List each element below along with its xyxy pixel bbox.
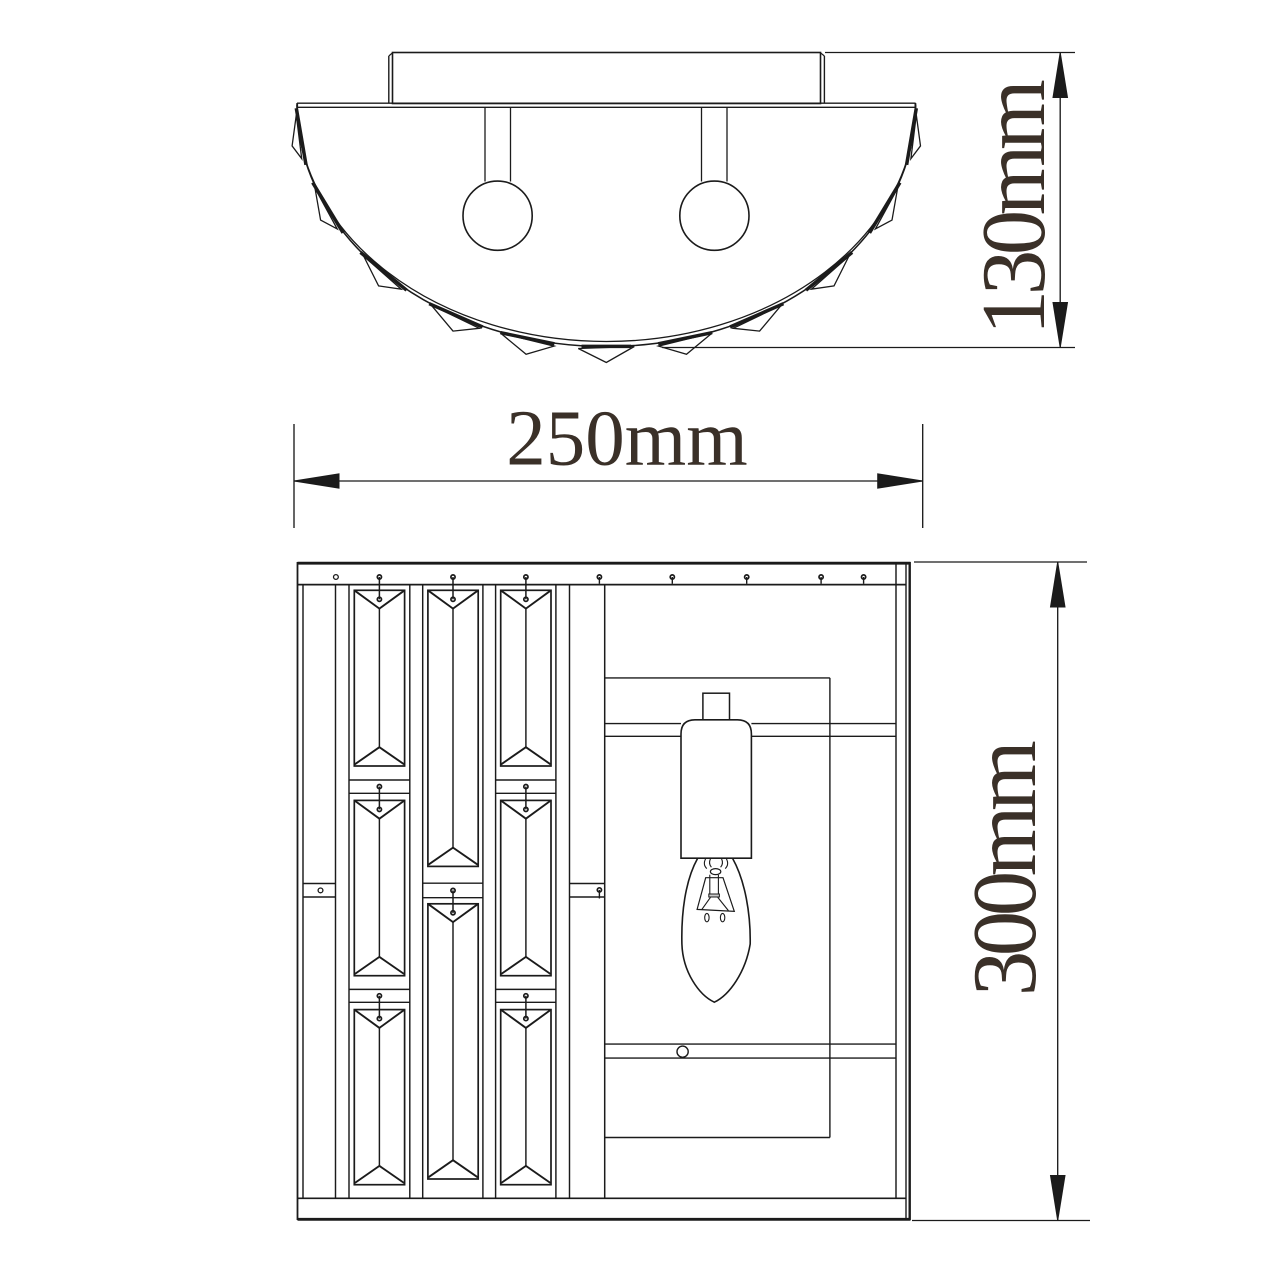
svg-text:130mm: 130mm	[963, 80, 1064, 335]
svg-text:300mm: 300mm	[954, 741, 1055, 996]
svg-text:250mm: 250mm	[506, 396, 747, 483]
